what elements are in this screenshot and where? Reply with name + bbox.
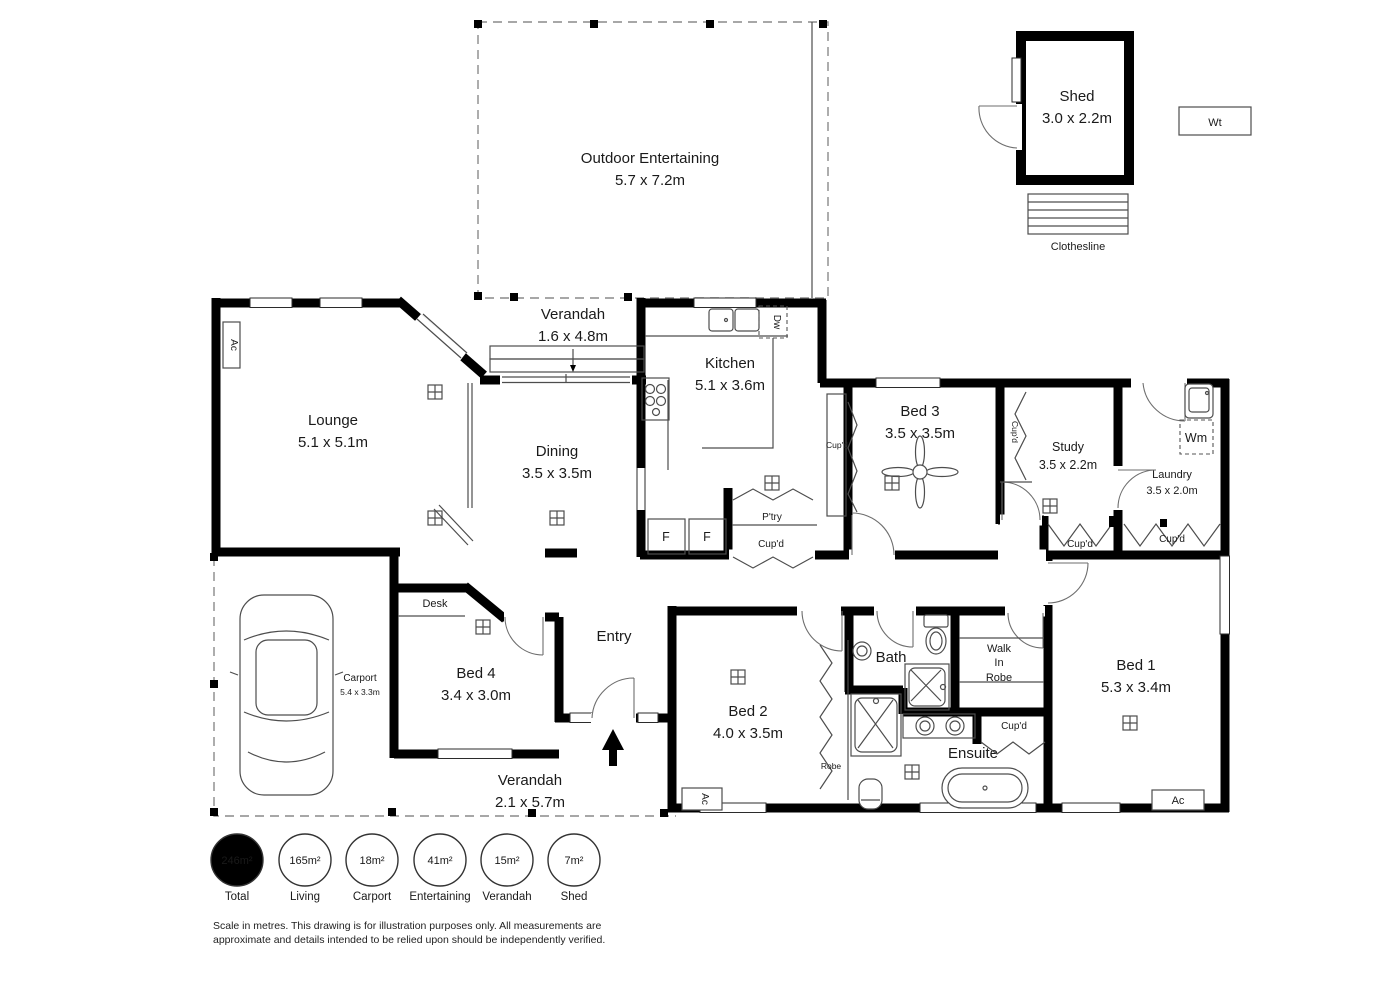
area-badge: 165m²Living <box>279 834 331 903</box>
washing-machine-label: Wm <box>1185 431 1207 445</box>
cupboard-label: Cup'd <box>1067 539 1093 550</box>
cooktop-icon <box>642 378 669 420</box>
room-dims: 3.5 x 3.5m <box>522 465 592 482</box>
room-dims: 5.1 x 5.1m <box>298 434 368 451</box>
fridge-label: F <box>703 530 711 544</box>
room-label: Entry <box>596 628 632 645</box>
dining: Dining 3.5 x 3.5m <box>522 443 592 482</box>
shed: Shed 3.0 x 2.2m <box>979 36 1129 180</box>
post-icon <box>624 293 632 301</box>
badge-value: 15m² <box>494 855 519 867</box>
bathtub-icon <box>942 768 1028 808</box>
cupboard-label: Cup'd <box>826 440 848 450</box>
room-label: Bath <box>876 649 907 666</box>
basin-icon <box>853 642 871 660</box>
room-dims: 5.3 x 3.4m <box>1101 679 1171 696</box>
room-dims: 5.1 x 3.6m <box>695 377 765 394</box>
toilet-icon <box>859 779 882 809</box>
car-icon <box>230 595 343 795</box>
room-dims: 1.6 x 4.8m <box>538 328 608 345</box>
ceiling-light-icon <box>765 476 779 490</box>
area-badge: 15m²Verandah <box>481 834 533 903</box>
ac-label: Ac <box>228 339 239 351</box>
badge-label: Total <box>225 891 249 903</box>
area-badge: 7m²Shed <box>548 834 600 903</box>
room-label: Study <box>1052 440 1085 454</box>
posts <box>210 20 827 817</box>
room-label: Verandah <box>498 772 562 789</box>
area-badge: 246m²Total <box>211 834 263 903</box>
badge-label: Carport <box>353 891 392 903</box>
badge-label: Entertaining <box>409 891 470 903</box>
cupboard-label: Cup'd <box>1010 421 1020 443</box>
badge-value: 165m² <box>289 855 321 867</box>
floorplan-canvas: Outdoor Entertaining 5.7 x 7.2m Shed 3.0… <box>0 0 1400 989</box>
outdoor-entertaining-area: Outdoor Entertaining 5.7 x 7.2m <box>478 22 828 298</box>
toilet-icon <box>924 615 948 654</box>
badge-value: 18m² <box>359 855 384 867</box>
badge-label: Shed <box>561 891 588 903</box>
room-label: Bed 1 <box>1116 657 1155 674</box>
vanity-icon <box>903 714 975 738</box>
dishwasher-label: Dw <box>771 315 782 330</box>
ceiling-light-icon <box>885 476 899 490</box>
post-icon <box>474 20 482 28</box>
shower-icon <box>851 694 901 756</box>
room-dims: 3.0 x 2.2m <box>1042 110 1112 127</box>
room-dims: 4.0 x 3.5m <box>713 725 783 742</box>
room-dims: 5.4 x 3.3m <box>340 687 380 697</box>
fridge-label: F <box>662 530 670 544</box>
entry-arrow-icon <box>602 729 624 766</box>
room-label: Outdoor Entertaining <box>581 150 719 167</box>
room-label: Ensuite <box>948 745 998 762</box>
desk-label: Desk <box>422 598 448 610</box>
water-tank-label: Wt <box>1208 117 1221 129</box>
room-label: Verandah <box>541 306 605 323</box>
area-badge: 18m²Carport <box>346 834 398 903</box>
room-label: Bed 4 <box>456 665 495 682</box>
post-icon <box>210 680 218 688</box>
badge-value: 41m² <box>427 855 452 867</box>
ceiling-light-icon <box>731 670 745 684</box>
room-dims: 3.5 x 2.0m <box>1146 485 1197 497</box>
bed3: Bed 3 3.5 x 3.5m Cup'd <box>826 394 958 516</box>
disclaimer-line2: approximate and details intended to be r… <box>213 934 605 946</box>
post-icon <box>660 809 668 817</box>
hall-cupboards: Cup'd Cup'd <box>1048 516 1220 550</box>
ceiling-light-icon <box>428 385 442 399</box>
ceiling-light-icon <box>1043 499 1057 513</box>
sink-icon <box>735 309 759 331</box>
clothesline-label: Clothesline <box>1051 241 1105 253</box>
ac-label: Ac <box>1172 795 1185 807</box>
room-label: Carport <box>343 673 377 684</box>
pantry-label: P'try <box>762 512 782 523</box>
cupboard-label: Cup'd <box>1159 534 1185 545</box>
clothesline: Clothesline <box>1028 194 1128 253</box>
badge-label: Verandah <box>482 891 531 903</box>
ceiling-light-icon <box>905 765 919 779</box>
post-icon <box>210 808 218 816</box>
laundry-tub-icon <box>1185 384 1213 418</box>
room-label: Bed 2 <box>728 703 767 720</box>
sink-icon <box>709 309 733 331</box>
study: Study 3.5 x 2.2m Cup'd <box>1000 392 1097 482</box>
room-label: Robe <box>986 672 1012 684</box>
badge-label: Living <box>290 891 320 903</box>
ceiling-light-icon <box>550 511 564 525</box>
ceiling-light-icon <box>476 620 490 634</box>
ac-label: Ac <box>699 793 710 805</box>
entry: Entry <box>596 628 632 766</box>
room-dims: 3.5 x 2.2m <box>1039 458 1097 472</box>
cupboard-label: Cup'd <box>1001 721 1027 732</box>
ceiling-light-icon <box>428 511 442 525</box>
room-label: Walk <box>987 643 1012 655</box>
room-dims: 2.1 x 5.7m <box>495 794 565 811</box>
ceiling-lights <box>428 385 1137 779</box>
post-icon <box>510 293 518 301</box>
room-label: Bed 3 <box>900 403 939 420</box>
room-label: Laundry <box>1152 469 1192 481</box>
room-dims: 3.4 x 3.0m <box>441 687 511 704</box>
bed2: Bed 2 4.0 x 3.5m Robe Ac <box>682 640 848 810</box>
laundry: Laundry 3.5 x 2.0m Wm <box>1146 384 1213 497</box>
post-icon <box>474 292 482 300</box>
post-icon <box>590 20 598 28</box>
post-icon <box>388 808 396 816</box>
room-label: Shed <box>1059 88 1094 105</box>
badge-value: 7m² <box>565 855 584 867</box>
post-icon <box>210 553 218 561</box>
verandah-top: Verandah 1.6 x 4.8m <box>490 306 644 372</box>
water-tank: Wt <box>1179 107 1251 135</box>
room-label: In <box>994 657 1003 669</box>
shower-icon <box>905 664 949 710</box>
cupboard-label: Cup'd <box>758 539 784 550</box>
ceiling-light-icon <box>1123 716 1137 730</box>
area-badge: 41m²Entertaining <box>409 834 470 903</box>
walk-in-robe: Walk In Robe <box>959 638 1044 684</box>
floorplan-page: Outdoor Entertaining 5.7 x 7.2m Shed 3.0… <box>0 0 1400 989</box>
room-dims: 5.7 x 7.2m <box>615 172 685 189</box>
robe-label: Robe <box>821 761 842 771</box>
room-label: Lounge <box>308 412 358 429</box>
room-label: Dining <box>536 443 579 460</box>
verandah-bottom: Verandah 2.1 x 5.7m <box>495 772 565 811</box>
cupboard-box <box>827 394 846 516</box>
ceiling-fan-icon <box>882 436 958 508</box>
post-icon <box>528 809 536 817</box>
post-icon <box>819 20 827 28</box>
area-badges: 246m²Total165m²Living18m²Carport41m²Ente… <box>211 834 600 903</box>
disclaimer-line1: Scale in metres. This drawing is for ill… <box>213 920 601 932</box>
room-label: Kitchen <box>705 355 755 372</box>
post-icon <box>706 20 714 28</box>
badge-value: 246m² <box>221 855 253 867</box>
bed1: Bed 1 5.3 x 3.4m Ac <box>1101 657 1204 810</box>
